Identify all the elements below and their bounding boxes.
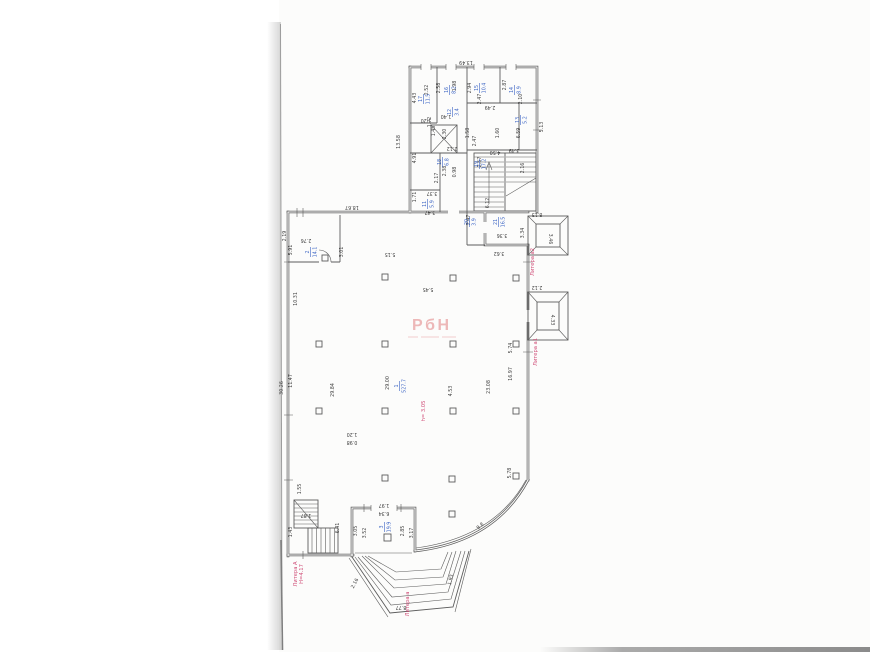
paper-sheet [279, 0, 870, 652]
dimension-label: 3.01 [339, 247, 345, 258]
svg-text:3.4: 3.4 [455, 108, 461, 116]
dimension-label: 10.31 [293, 292, 299, 306]
svg-text:1: 1 [394, 384, 400, 387]
litera-annotation: Литера а2 [530, 248, 536, 276]
dimension-label: 1.87 [301, 512, 312, 518]
dimension-label: 5.13 [539, 122, 545, 133]
svg-text:527.7: 527.7 [402, 379, 408, 393]
svg-text:8.9: 8.9 [517, 86, 523, 94]
dimension-label: 4.33 [549, 315, 555, 326]
dimension-label: 30.26 [279, 381, 285, 395]
svg-text:5.2: 5.2 [523, 116, 529, 124]
dimension-label: 5.78 [507, 468, 513, 479]
dimension-label: 4.53 [448, 386, 454, 397]
svg-text:8.2: 8.2 [452, 86, 458, 94]
svg-text:16: 16 [444, 87, 450, 93]
svg-text:3: 3 [379, 525, 385, 528]
svg-text:16.5: 16.5 [501, 217, 507, 228]
svg-text:5.9: 5.9 [430, 200, 436, 208]
dimension-label: 0.98 [347, 439, 358, 445]
svg-text:18: 18 [437, 159, 443, 165]
svg-text:Литера а: Литера а [405, 592, 411, 617]
dimension-label: 1.45 [431, 126, 437, 137]
svg-text:11.5: 11.5 [426, 94, 432, 105]
dimension-label: 5.45 [423, 286, 434, 292]
dimension-label: 2.10 [518, 94, 524, 105]
dimension-label: 2.47 [472, 136, 478, 147]
dimension-label: 2.87 [502, 80, 508, 91]
dimension-label: 13.58 [396, 135, 402, 149]
dimension-label: 5.15 [385, 251, 396, 257]
dimension-label: 4.43 [412, 93, 418, 104]
dimension-label: 3.46 [547, 234, 553, 245]
dimension-label: 3.05 [353, 526, 359, 537]
dimension-label: 1.43 [288, 527, 294, 538]
page-edge-shadow [267, 22, 281, 650]
dimension-label: 6.34 [379, 510, 390, 516]
dimension-label: 4.91 [412, 153, 418, 164]
dimension-label: 3.62 [494, 250, 505, 256]
svg-text:14: 14 [509, 87, 515, 93]
dimension-label: 2.47 [477, 94, 483, 105]
dimension-label: 1.60 [495, 128, 501, 139]
dimension-label: 1.20 [347, 431, 358, 437]
dimension-label: 1.55 [297, 484, 303, 495]
dimension-label: 1.58 [465, 128, 471, 139]
dimension-label: 3.52 [362, 528, 368, 539]
svg-text:10.4: 10.4 [482, 83, 488, 94]
svg-text:11: 11 [422, 201, 428, 207]
litera-annotation: h= 3.05 [421, 401, 427, 422]
dimension-label: 8.13 [532, 211, 543, 217]
dimension-label: 2.12 [532, 284, 543, 290]
svg-text:3.9: 3.9 [472, 218, 478, 226]
dimension-label: 2.58 [436, 83, 442, 94]
litera-annotation: Литера А Н=4.17 [293, 561, 305, 587]
svg-text:Литера а1: Литера а1 [533, 338, 539, 366]
svg-text:19: 19 [474, 161, 480, 167]
dimension-label: 3.17 [409, 528, 415, 539]
dimension-label: 13.49 [459, 59, 473, 65]
svg-text:Н=4.17: Н=4.17 [299, 564, 305, 584]
dimension-label: 2.30 [442, 129, 448, 140]
dimension-label: 6.59 [516, 128, 522, 139]
dimension-label: 3.37 [427, 190, 438, 196]
dimension-label: 3.49 [509, 147, 520, 153]
dimension-label: 23.08 [486, 380, 492, 394]
svg-text:РбН: РбН [412, 317, 452, 334]
litera-annotation: Литера а [405, 592, 411, 617]
dimension-label: 3.34 [520, 228, 526, 239]
dimension-label: 1.71 [412, 192, 418, 203]
scan-bottom-band [540, 647, 870, 652]
dimension-label: 4.50 [490, 149, 501, 155]
svg-text:19.9: 19.9 [387, 522, 393, 533]
dimension-label: 6.12 [485, 198, 491, 209]
dimension-label: 2.38 [442, 166, 448, 177]
dimension-label: 11.47 [288, 374, 294, 388]
svg-text:15: 15 [474, 85, 480, 91]
dimension-label: 2.19 [282, 231, 288, 242]
svg-text:21: 21 [493, 219, 499, 225]
svg-text:13: 13 [515, 117, 521, 123]
dimension-label: 18.67 [345, 204, 359, 210]
dimension-label: 2.85 [400, 526, 406, 537]
svg-text:17.2: 17.2 [482, 159, 488, 170]
dimension-label: 3.36 [497, 232, 508, 238]
dimension-label: 29.00 [385, 376, 391, 390]
dimension-label: 2.12 [447, 145, 458, 151]
dimension-label: 0.98 [452, 167, 458, 178]
dimension-label: 29.84 [330, 383, 336, 397]
svg-text:20: 20 [464, 219, 470, 225]
floor-plan-drawing: РбН [0, 0, 870, 652]
svg-text:14.1: 14.1 [313, 247, 319, 258]
dimension-label: 5.91 [288, 245, 294, 256]
svg-text:6.8: 6.8 [445, 158, 451, 166]
svg-text:17: 17 [418, 96, 424, 102]
dimension-label: 1.20 [421, 117, 432, 123]
dimension-label: 2.76 [301, 237, 312, 243]
dimension-label: 2.94 [467, 83, 473, 94]
dimension-label: 16.97 [508, 367, 514, 381]
svg-text:Литера а2: Литера а2 [530, 248, 536, 276]
dimension-label: 2.16 [520, 163, 526, 174]
svg-text:h= 3.05: h= 3.05 [421, 401, 427, 422]
dimension-label: 1.97 [379, 502, 390, 508]
dimension-label: 6.41 [335, 523, 341, 534]
svg-text:2: 2 [305, 250, 311, 253]
svg-text:12: 12 [447, 109, 453, 115]
dimension-label: 5.74 [508, 343, 514, 354]
dimension-label: 2.49 [485, 104, 496, 110]
dimension-label: 3.47 [425, 209, 436, 215]
litera-annotation: Литера а1 [533, 338, 539, 366]
dimension-label: 2.17 [434, 173, 440, 184]
scanned-floorplan-page: РбН [0, 0, 870, 652]
